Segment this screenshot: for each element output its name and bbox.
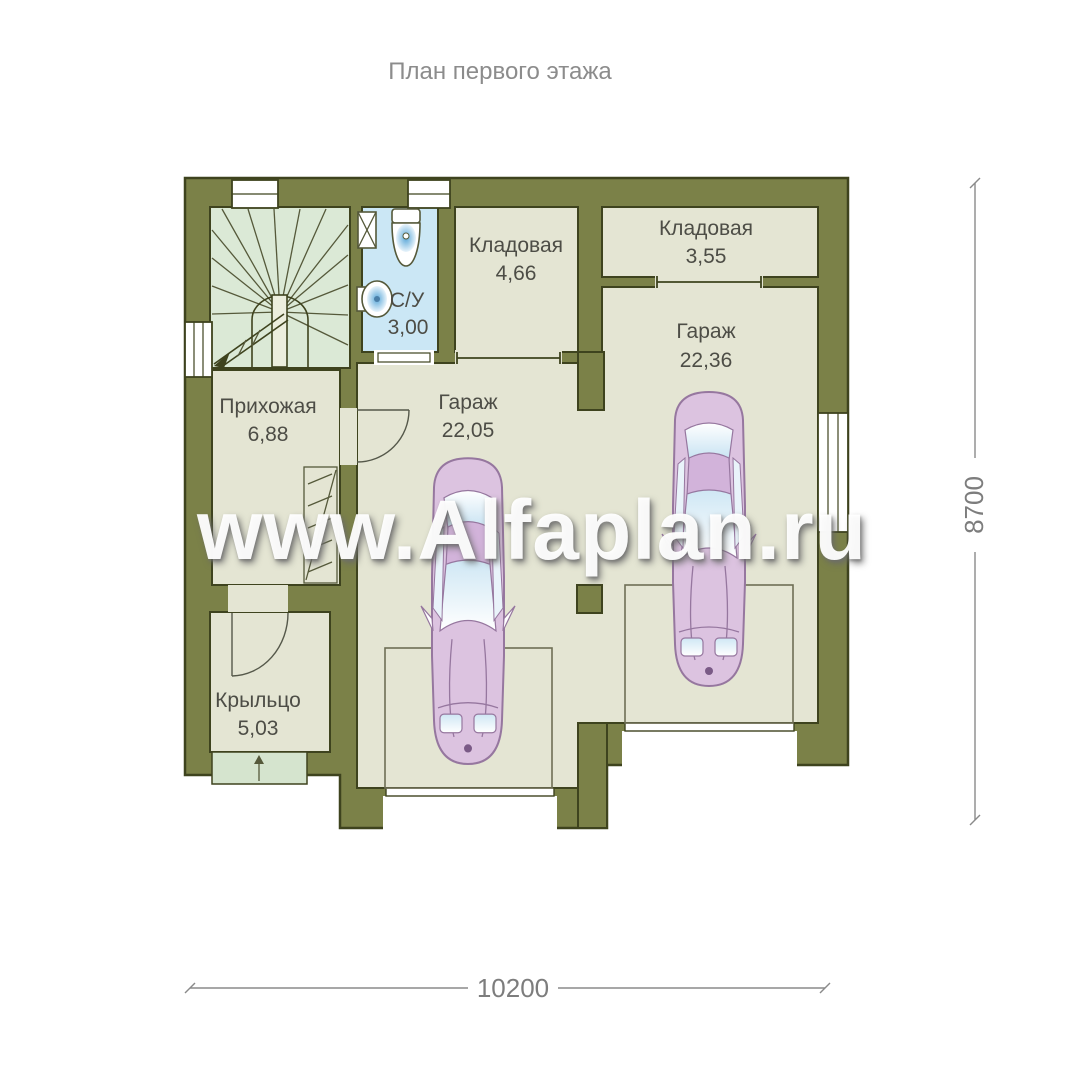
door-bathroom bbox=[374, 350, 434, 365]
room-label-porch: Крыльцо bbox=[215, 689, 301, 712]
window-right bbox=[818, 413, 848, 532]
room-area-garage1: 22,05 bbox=[442, 419, 495, 442]
dimension-height-label: 8700 bbox=[959, 476, 989, 534]
window-top-left bbox=[232, 180, 278, 208]
wall-pillar-between-garages bbox=[577, 585, 602, 613]
room-label-storage2: Кладовая bbox=[659, 217, 753, 240]
garage-door-left bbox=[386, 788, 554, 796]
window-top-middle bbox=[408, 180, 450, 208]
opening-storage1 bbox=[455, 350, 562, 365]
room-area-porch: 5,03 bbox=[238, 717, 279, 740]
wall-between-garage-doors bbox=[578, 723, 607, 828]
garage-door-opening-right bbox=[622, 731, 797, 769]
car-left bbox=[421, 458, 515, 764]
room-label-garage2: Гараж bbox=[676, 320, 735, 343]
car-right bbox=[662, 392, 756, 686]
garage-door-right bbox=[625, 723, 794, 731]
room-area-garage2: 22,36 bbox=[680, 349, 733, 372]
room-area-hallway: 6,88 bbox=[248, 423, 289, 446]
room-label-bathroom: С/У bbox=[390, 289, 425, 312]
dimension-right: 8700 bbox=[959, 178, 989, 825]
sink-icon bbox=[357, 281, 392, 317]
room-area-storage1: 4,66 bbox=[496, 262, 537, 285]
opening-storage2 bbox=[655, 275, 763, 289]
room-area-storage2: 3,55 bbox=[686, 245, 727, 268]
porch-steps bbox=[212, 752, 307, 784]
garage-door-opening-left bbox=[383, 796, 557, 832]
floor-plan-page: План первого этажа bbox=[0, 0, 1080, 1080]
dimension-width-label: 10200 bbox=[477, 973, 549, 1003]
wall-stub-between-garages-top bbox=[578, 352, 604, 410]
room-label-storage1: Кладовая bbox=[469, 234, 563, 257]
room-area-bathroom: 3,00 bbox=[388, 316, 429, 339]
washing-machine-icon bbox=[358, 212, 376, 248]
floor-plan-drawing: С/У 3,00 Кладовая 4,66 Кладовая 3,55 Гар… bbox=[0, 0, 1080, 1080]
room-label-hallway: Прихожая bbox=[219, 395, 316, 418]
dimension-bottom: 10200 bbox=[185, 973, 830, 1003]
window-left bbox=[185, 322, 212, 377]
room-label-garage1: Гараж bbox=[438, 391, 497, 414]
